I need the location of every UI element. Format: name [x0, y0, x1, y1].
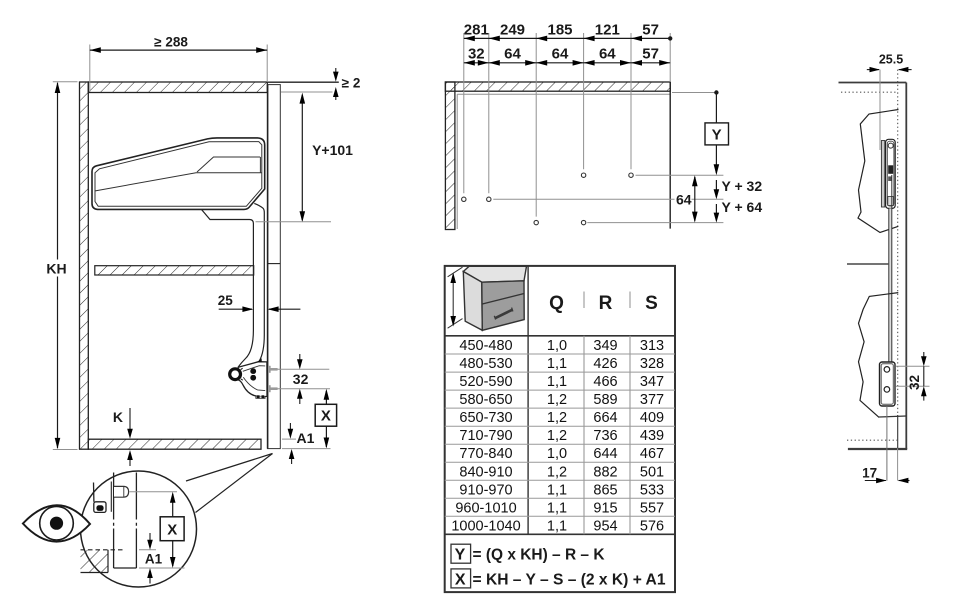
svg-text:32: 32 [907, 375, 922, 390]
svg-text:X: X [321, 408, 331, 425]
svg-text:K: K [113, 409, 123, 425]
svg-text:644: 644 [593, 446, 617, 462]
svg-text:57: 57 [642, 46, 659, 63]
svg-text:501: 501 [640, 464, 664, 480]
svg-text:533: 533 [640, 482, 664, 498]
svg-text:57: 57 [642, 21, 659, 38]
svg-text:KH: KH [46, 261, 66, 277]
svg-text:1000-1040: 1000-1040 [451, 518, 520, 534]
svg-text:= (Q x KH) – R – K: = (Q x KH) – R – K [473, 547, 605, 564]
svg-text:Y + 32: Y + 32 [722, 178, 763, 194]
svg-text:Y + 64: Y + 64 [722, 199, 763, 215]
svg-text:576: 576 [640, 518, 664, 534]
svg-text:121: 121 [595, 21, 620, 38]
svg-text:347: 347 [640, 374, 664, 390]
svg-text:185: 185 [547, 21, 572, 38]
svg-text:910-970: 910-970 [459, 482, 512, 498]
svg-text:249: 249 [500, 21, 525, 38]
svg-text:349: 349 [593, 338, 617, 354]
svg-text:1,1: 1,1 [547, 374, 567, 390]
svg-text:X: X [455, 571, 466, 588]
svg-text:480-530: 480-530 [459, 356, 512, 372]
svg-text:32: 32 [293, 371, 309, 387]
svg-text:≥ 2: ≥ 2 [342, 76, 361, 91]
svg-text:915: 915 [593, 500, 617, 516]
svg-text:882: 882 [593, 464, 617, 480]
svg-text:840-910: 840-910 [459, 464, 512, 480]
svg-text:A1: A1 [297, 430, 315, 446]
svg-text:R: R [599, 293, 613, 314]
svg-text:1,1: 1,1 [547, 500, 567, 516]
svg-text:= KH – Y – S – (2 x K) + A1: = KH – Y – S – (2 x K) + A1 [473, 571, 666, 588]
svg-text:1,1: 1,1 [547, 356, 567, 372]
svg-text:710-790: 710-790 [459, 428, 512, 444]
svg-text:1,2: 1,2 [547, 410, 567, 426]
svg-text:557: 557 [640, 500, 664, 516]
svg-text:770-840: 770-840 [459, 446, 512, 462]
svg-text:377: 377 [640, 392, 664, 408]
svg-text:1,2: 1,2 [547, 464, 567, 480]
svg-text:≥ 288: ≥ 288 [154, 35, 188, 50]
svg-text:1,2: 1,2 [547, 428, 567, 444]
svg-text:64: 64 [676, 192, 692, 208]
svg-text:25.5: 25.5 [879, 53, 903, 67]
svg-text:328: 328 [640, 356, 664, 372]
svg-text:466: 466 [593, 374, 617, 390]
svg-text:960-1010: 960-1010 [455, 500, 516, 516]
svg-text:64: 64 [599, 46, 616, 63]
svg-text:650-730: 650-730 [459, 410, 512, 426]
svg-text:64: 64 [504, 46, 521, 63]
svg-text:467: 467 [640, 446, 664, 462]
svg-text:281: 281 [464, 21, 489, 38]
svg-text:S: S [645, 293, 658, 314]
svg-text:32: 32 [468, 46, 485, 63]
svg-text:954: 954 [593, 518, 617, 534]
svg-text:17: 17 [862, 466, 877, 481]
svg-text:313: 313 [640, 338, 664, 354]
svg-text:Y+101: Y+101 [312, 142, 353, 158]
svg-text:865: 865 [593, 482, 617, 498]
svg-text:64: 64 [552, 46, 569, 63]
svg-text:1,0: 1,0 [547, 446, 567, 462]
svg-text:426: 426 [593, 356, 617, 372]
svg-text:589: 589 [593, 392, 617, 408]
svg-text:450-480: 450-480 [459, 338, 512, 354]
svg-text:Y: Y [455, 547, 466, 564]
svg-text:1,1: 1,1 [547, 518, 567, 534]
svg-text:Y: Y [712, 126, 722, 143]
svg-text:409: 409 [640, 410, 664, 426]
svg-text:25: 25 [218, 293, 234, 308]
svg-text:520-590: 520-590 [459, 374, 512, 390]
svg-text:664: 664 [593, 410, 617, 426]
svg-text:1,2: 1,2 [547, 392, 567, 408]
svg-text:1,1: 1,1 [547, 482, 567, 498]
svg-text:439: 439 [640, 428, 664, 444]
svg-text:X: X [167, 521, 177, 538]
svg-text:736: 736 [593, 428, 617, 444]
svg-text:1,0: 1,0 [547, 338, 567, 354]
svg-text:Q: Q [549, 293, 564, 314]
svg-text:A1: A1 [145, 551, 163, 566]
svg-text:580-650: 580-650 [459, 392, 512, 408]
